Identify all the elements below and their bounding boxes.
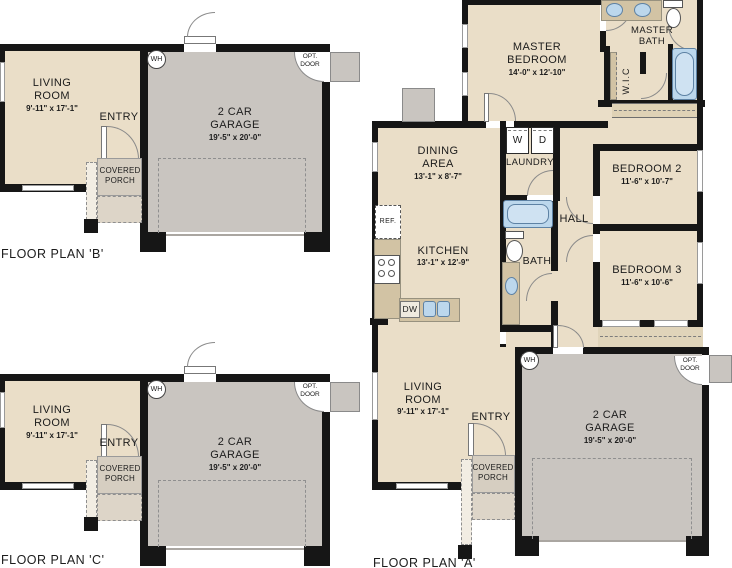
wall [593,224,703,231]
covered-porch-label: COVERED [100,166,141,175]
door-leaf [184,366,216,374]
patio-dashed-line [600,336,701,337]
garage-dims: 19'-5" x 20'-0" [209,133,261,142]
kitchen-sink [437,301,450,317]
dining-area-label: DINING [418,145,459,157]
master-bath-label: BATH [639,36,665,47]
living-room-dims: 9'-11" x 17'-1" [397,407,449,416]
wall [640,52,646,74]
counter-edge [533,130,552,131]
plan-a-title: FLOOR PLAN 'A' [373,556,476,568]
window [462,24,468,48]
closet-shelf [610,52,617,100]
hall-label: HALL [559,213,588,225]
counter-edge [508,130,527,131]
garage-door-line [166,548,304,550]
water-heater-badge: WH [147,380,166,399]
wall-pier [304,546,330,566]
sink [606,3,623,17]
opt-door-label: OPT. [683,357,697,364]
wall [0,44,148,51]
door-opening [184,44,216,52]
entry-label: ENTRY [471,411,510,423]
door-opening [593,234,600,262]
window [0,62,5,102]
washer-box: W [506,127,529,154]
window [654,320,688,327]
plan-a-bedrooms-floor [598,100,703,328]
wall [697,105,703,327]
entry-label: ENTRY [99,437,138,449]
dw-label: DW [403,304,418,314]
wall [140,44,330,52]
garage-door-dashed-line [158,158,306,233]
window [697,242,703,284]
wall-pier [686,536,709,556]
covered-porch-label: PORCH [105,176,135,185]
living-room-dims: 9'-11" x 17'-1" [26,431,78,440]
water-heater-badge: WH [147,50,166,69]
wall [515,347,522,543]
closet-rod [614,110,695,111]
porch-extension [472,493,515,520]
wall [515,347,709,354]
door-swing-arc [187,12,215,37]
window [372,372,378,420]
door-opening [593,196,600,224]
toilet-bowl [506,240,523,262]
kitchen-dims: 13'-1" x 12'-9" [417,258,469,267]
wall [140,374,330,382]
wall-pier [304,232,330,252]
garage-door-dashed-line [158,480,306,547]
living-room-label: ROOM [34,417,70,429]
wall-pier [140,546,166,566]
master-bedroom-label: BEDROOM [507,54,567,66]
dining-area-dims: 13'-1" x 8'-7" [414,172,462,181]
garage-label: GARAGE [210,119,259,131]
bedroom2-dims: 11'-6" x 10'-7" [621,177,673,186]
wall [697,0,703,105]
dining-bay [402,88,435,122]
wic-label: W.I.C [621,68,631,95]
garage-door-line [539,540,686,542]
porch-post [84,517,98,531]
wall [598,144,703,151]
living-room-label: ROOM [405,394,441,406]
garage-label: 2 CAR [593,409,627,421]
wall-pier [515,536,539,556]
living-room-label: LIVING [404,381,442,393]
covered-porch-label: COVERED [100,464,141,473]
covered-porch-label: PORCH [105,474,135,483]
opt-door-label: DOOR [680,365,700,372]
wall [553,121,560,201]
water-heater-badge: WH [520,351,539,370]
toilet-tank [663,0,683,8]
wall [462,0,468,126]
door-opening [702,355,709,385]
master-bedroom-dims: 14'-0" x 12'-10" [509,68,566,77]
door-swing-arc [187,342,215,367]
porch-post [84,219,98,233]
kitchen-sink [423,301,436,317]
master-bedroom-label: MASTER [513,41,561,53]
opt-door-label: DOOR [300,391,320,398]
window [396,483,448,489]
window [22,483,74,489]
porch-extension [97,494,142,521]
laundry-label: LAUNDRY [506,157,554,168]
living-room-label: ROOM [34,90,70,102]
wall [372,121,467,128]
opt-door-label: DOOR [300,61,320,68]
living-room-label: LIVING [33,404,71,416]
bath-label: BATH [523,255,552,267]
wall [462,0,608,5]
stove-burner [388,270,395,277]
garage-dims: 19'-5" x 20'-0" [209,463,261,472]
window [697,150,703,192]
covered-porch-label: PORCH [478,473,508,482]
living-room-label: LIVING [33,77,71,89]
garage-dims: 19'-5" x 20'-0" [584,436,636,445]
door-opening [553,347,583,354]
porch-side-strip [86,460,97,518]
door-opening [184,374,216,382]
kitchen-label: KITCHEN [417,245,468,257]
stove-burner [378,259,385,266]
dining-area-label: AREA [422,158,454,170]
garage-label: 2 CAR [218,106,252,118]
wall [0,374,148,381]
opt-door-landing [330,52,360,82]
stove-burner [388,259,395,266]
opt-door-landing [330,382,360,412]
bedroom3-label: BEDROOM 3 [612,264,682,276]
plan-c-title: FLOOR PLAN 'C' [1,553,104,567]
garage-door-dashed-line [532,458,692,539]
entry-label: ENTRY [99,111,138,123]
covered-porch-label: COVERED [473,463,514,472]
window [22,185,74,191]
opt-door-label: OPT. [303,53,317,60]
wall [500,325,558,332]
bedroom3-dims: 11'-6" x 10'-6" [621,278,673,287]
porch-side-strip [461,459,472,545]
porch-side-strip [86,162,97,220]
opt-door-label: OPT. [303,383,317,390]
bedroom2-label: BEDROOM 2 [612,163,682,175]
ref-label: REF. [380,218,397,225]
plan-a-patio-strip [598,327,703,347]
dryer-box: D [531,127,554,154]
door-leaf [184,36,216,44]
window [0,392,5,428]
floor-plan-sheet: OPT. DOOR WH LIVING ROOM 9'-11" x 17'-1"… [0,0,732,568]
garage-label: GARAGE [210,449,259,461]
garage-label: GARAGE [585,422,634,434]
toilet-tank [505,231,524,239]
window [602,320,640,327]
opt-door-landing [709,355,732,383]
master-bath-label: MASTER [631,25,673,36]
window [372,142,378,172]
garage-label: 2 CAR [218,436,252,448]
bathtub-inner [507,204,549,224]
porch-extension [97,196,142,223]
living-room-dims: 9'-11" x 17'-1" [26,104,78,113]
stove-burner [378,270,385,277]
wall [370,318,388,325]
wall-pier [140,232,166,252]
sink [505,277,518,295]
bathtub-inner [675,52,694,96]
garage-door-line [166,234,304,236]
window [462,72,468,96]
sink [634,3,651,17]
plan-b-title: FLOOR PLAN 'B' [1,247,104,261]
